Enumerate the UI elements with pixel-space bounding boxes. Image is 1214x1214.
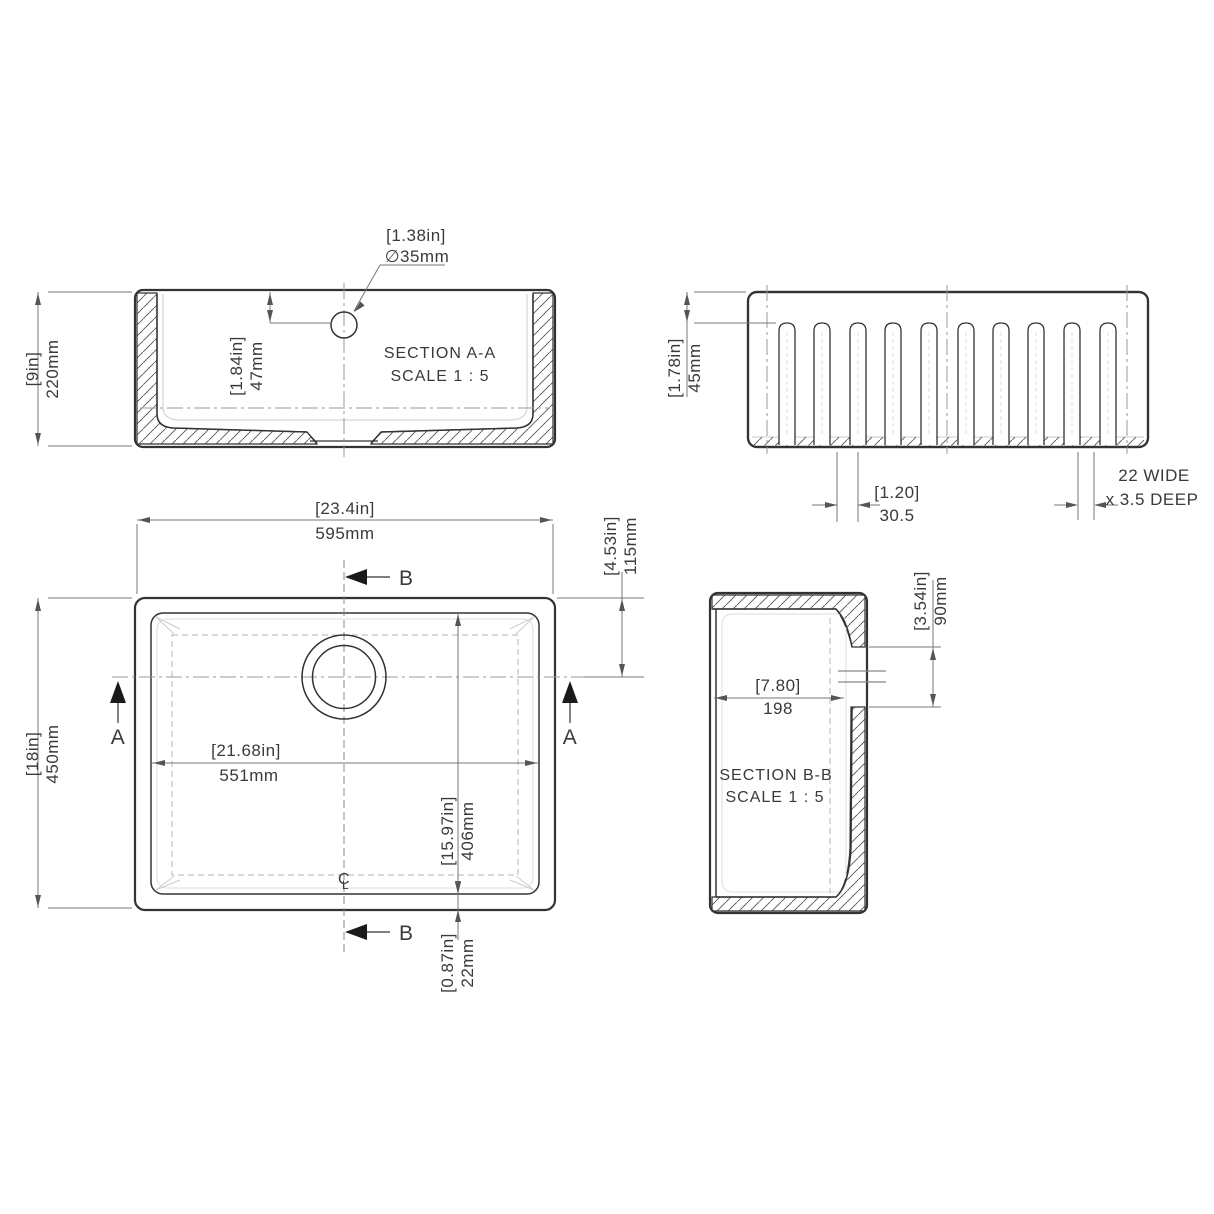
flute-top-inches: [1.78in] — [665, 338, 684, 398]
wall-mm: 22mm — [458, 938, 477, 987]
section-aa-outline — [135, 290, 555, 447]
dim-overall-width: [23.4in] 595mm — [137, 499, 553, 594]
height-inches: [9in] — [23, 352, 42, 387]
section-a-label-left: A — [111, 726, 126, 749]
section-aa-bowl-inner-outline — [157, 294, 533, 432]
plan-view: C L — [112, 560, 644, 953]
section-bb-view: SECTION B-B SCALE 1 : 5 — [710, 593, 886, 913]
bb-width-mm: 198 — [763, 699, 793, 718]
dim-bb-inner-width: [7.80] 198 — [714, 676, 844, 718]
bb-inner-outline — [712, 609, 852, 897]
hole-dia-inches: [1.38in] — [386, 226, 446, 245]
bb-drain-height-mm: 90mm — [931, 576, 950, 625]
section-b-label-top: B — [399, 567, 414, 590]
flute-pitch-inches: [1.20] — [874, 483, 920, 502]
dim-wall-thickness: [0.87in] 22mm — [438, 880, 477, 993]
hole-depth-mm: 47mm — [247, 341, 266, 390]
inner-depth-inches: [15.97in] — [438, 796, 457, 866]
dim-flute-size-note: 22 WIDE x 3.5 DEEP — [1054, 452, 1198, 520]
section-b-label-bottom: B — [399, 922, 414, 945]
inner-depth-mm: 406mm — [458, 801, 477, 860]
flute-top-mm: 45mm — [685, 343, 704, 392]
bb-bottom-wall-hatch — [712, 707, 865, 911]
flute-note-line2: x 3.5 DEEP — [1106, 490, 1199, 509]
bb-top-wall-hatch — [712, 595, 865, 647]
technical-drawing-page: SECTION A-A SCALE 1 : 5 [1.38in] ∅35mm [… — [0, 0, 1214, 1214]
dim-inner-width: [21.68in] 551mm — [152, 741, 538, 785]
dim-overall-depth: [18in] 450mm — [23, 598, 132, 908]
dim-flute-pitch: [1.20] 30.5 — [812, 452, 920, 525]
dim-drain-offset: [4.53in] 115mm — [557, 516, 644, 677]
section-bb-title: SECTION B-B — [719, 767, 832, 784]
dim-bb-drain-height: [3.54in] 90mm — [869, 571, 950, 707]
section-bb-outline — [710, 593, 867, 913]
dim-hole-diameter: [1.38in] ∅35mm — [352, 226, 449, 314]
dim-hole-position: [1.84in] 47mm — [227, 292, 332, 396]
dim-overall-height: [9in] 220mm — [23, 292, 132, 446]
section-aa-title: SECTION A-A — [384, 345, 496, 362]
drawing-canvas: SECTION A-A SCALE 1 : 5 [1.38in] ∅35mm [… — [0, 0, 1214, 1214]
centerline-symbol-l: L — [342, 878, 349, 892]
front-fluted-view — [748, 285, 1148, 454]
drain-offset-inches: [4.53in] — [601, 516, 620, 576]
hole-dia-mm: ∅35mm — [385, 247, 450, 266]
section-aa-scale: SCALE 1 : 5 — [390, 368, 489, 385]
inner-width-mm: 551mm — [219, 766, 278, 785]
depth-inches: [18in] — [23, 732, 42, 777]
drain-offset-mm: 115mm — [621, 517, 640, 575]
section-bb-scale: SCALE 1 : 5 — [725, 789, 824, 806]
dim-inner-depth: [15.97in] 406mm — [438, 613, 477, 894]
bb-width-inches: [7.80] — [755, 676, 801, 695]
section-aa-view: SECTION A-A SCALE 1 : 5 — [135, 283, 555, 457]
height-mm: 220mm — [43, 339, 62, 398]
bb-drain-lines — [838, 671, 886, 682]
hole-depth-inches: [1.84in] — [227, 336, 246, 396]
section-a-label-right: A — [563, 726, 578, 749]
dim-flute-top-offset: [1.78in] 45mm — [665, 292, 776, 398]
inner-width-inches: [21.68in] — [211, 741, 281, 760]
width-inches: [23.4in] — [315, 499, 375, 518]
flute-pitch-mm: 30.5 — [879, 506, 914, 525]
depth-mm: 450mm — [43, 724, 62, 783]
width-mm: 595mm — [315, 524, 374, 543]
plan-bowl-edge — [151, 613, 539, 894]
flute-bottom-hatch — [752, 437, 1144, 446]
flute-note-line1: 22 WIDE — [1118, 466, 1190, 485]
wall-inches: [0.87in] — [438, 933, 457, 993]
bb-drain-height-inches: [3.54in] — [911, 571, 930, 631]
